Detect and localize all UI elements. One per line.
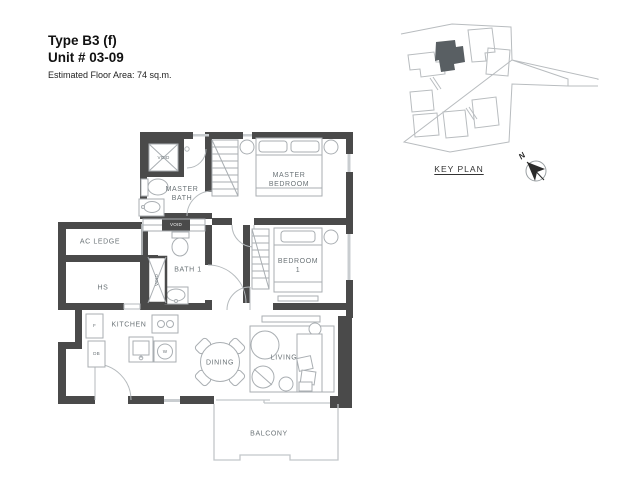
unit-number-title: Unit # 03-09 [48, 50, 172, 67]
side-table-icon [309, 323, 321, 335]
highlighted-building [435, 40, 465, 72]
armchair-icon [252, 366, 274, 388]
cooktop-icon [152, 315, 178, 333]
fridge-label: F [93, 323, 96, 329]
floor-plan-page: Type B3 (f) Unit # 03-09 Estimated Floor… [0, 0, 640, 480]
sink-icon [139, 199, 164, 216]
side-table-icon [324, 140, 338, 154]
sofa-icon [297, 334, 322, 392]
sink-icon [165, 287, 188, 304]
room-label-balcony: BALCONY [250, 429, 288, 438]
void-label-shaft: VOID [154, 274, 160, 286]
site-outline [401, 24, 598, 152]
unit-type-title: Type B3 (f) [48, 33, 172, 50]
toilet-icon [141, 179, 168, 196]
side-table-icon [240, 140, 254, 154]
room-label-ac-ledge: AC LEDGE [80, 237, 120, 246]
key-plan [401, 24, 598, 152]
title-block: Type B3 (f) Unit # 03-09 Estimated Floor… [48, 33, 172, 80]
console-icon [262, 316, 320, 322]
db-label: DB [93, 351, 100, 357]
room-label-bedroom-1: BEDROOM 1 [278, 257, 318, 275]
wardrobe-icon [252, 229, 269, 289]
kitchen-sink-icon [129, 337, 153, 362]
side-table-icon [279, 377, 293, 391]
room-label-dining: DINING [206, 358, 234, 367]
room-label-master-bedroom: MASTER BEDROOM [269, 171, 309, 189]
side-table-icon [324, 230, 338, 244]
room-label-master-bath: MASTER BATH [166, 185, 199, 203]
building-footprint [468, 28, 495, 62]
void-label-strip: VOID [170, 222, 182, 228]
building-footprint [472, 97, 499, 128]
room-label-hs: HS [98, 283, 109, 292]
building-footprint [443, 110, 468, 138]
key-plan-title: KEY PLAN [434, 164, 483, 174]
floor-area-label: Estimated Floor Area: 74 sq.m. [48, 70, 172, 80]
building-footprint [410, 90, 434, 112]
master-bath-fixtures [139, 138, 184, 216]
north-arrow-icon [526, 161, 546, 181]
room-label-kitchen: KITCHEN [112, 320, 147, 329]
room-label-bath-1: BATH 1 [174, 265, 202, 274]
void-label-shower: VOID [157, 155, 169, 161]
wardrobe-icon [212, 140, 238, 196]
washer-label: W [163, 349, 168, 355]
room-label-living: LIVING [271, 353, 298, 362]
toilet-icon [172, 232, 189, 256]
